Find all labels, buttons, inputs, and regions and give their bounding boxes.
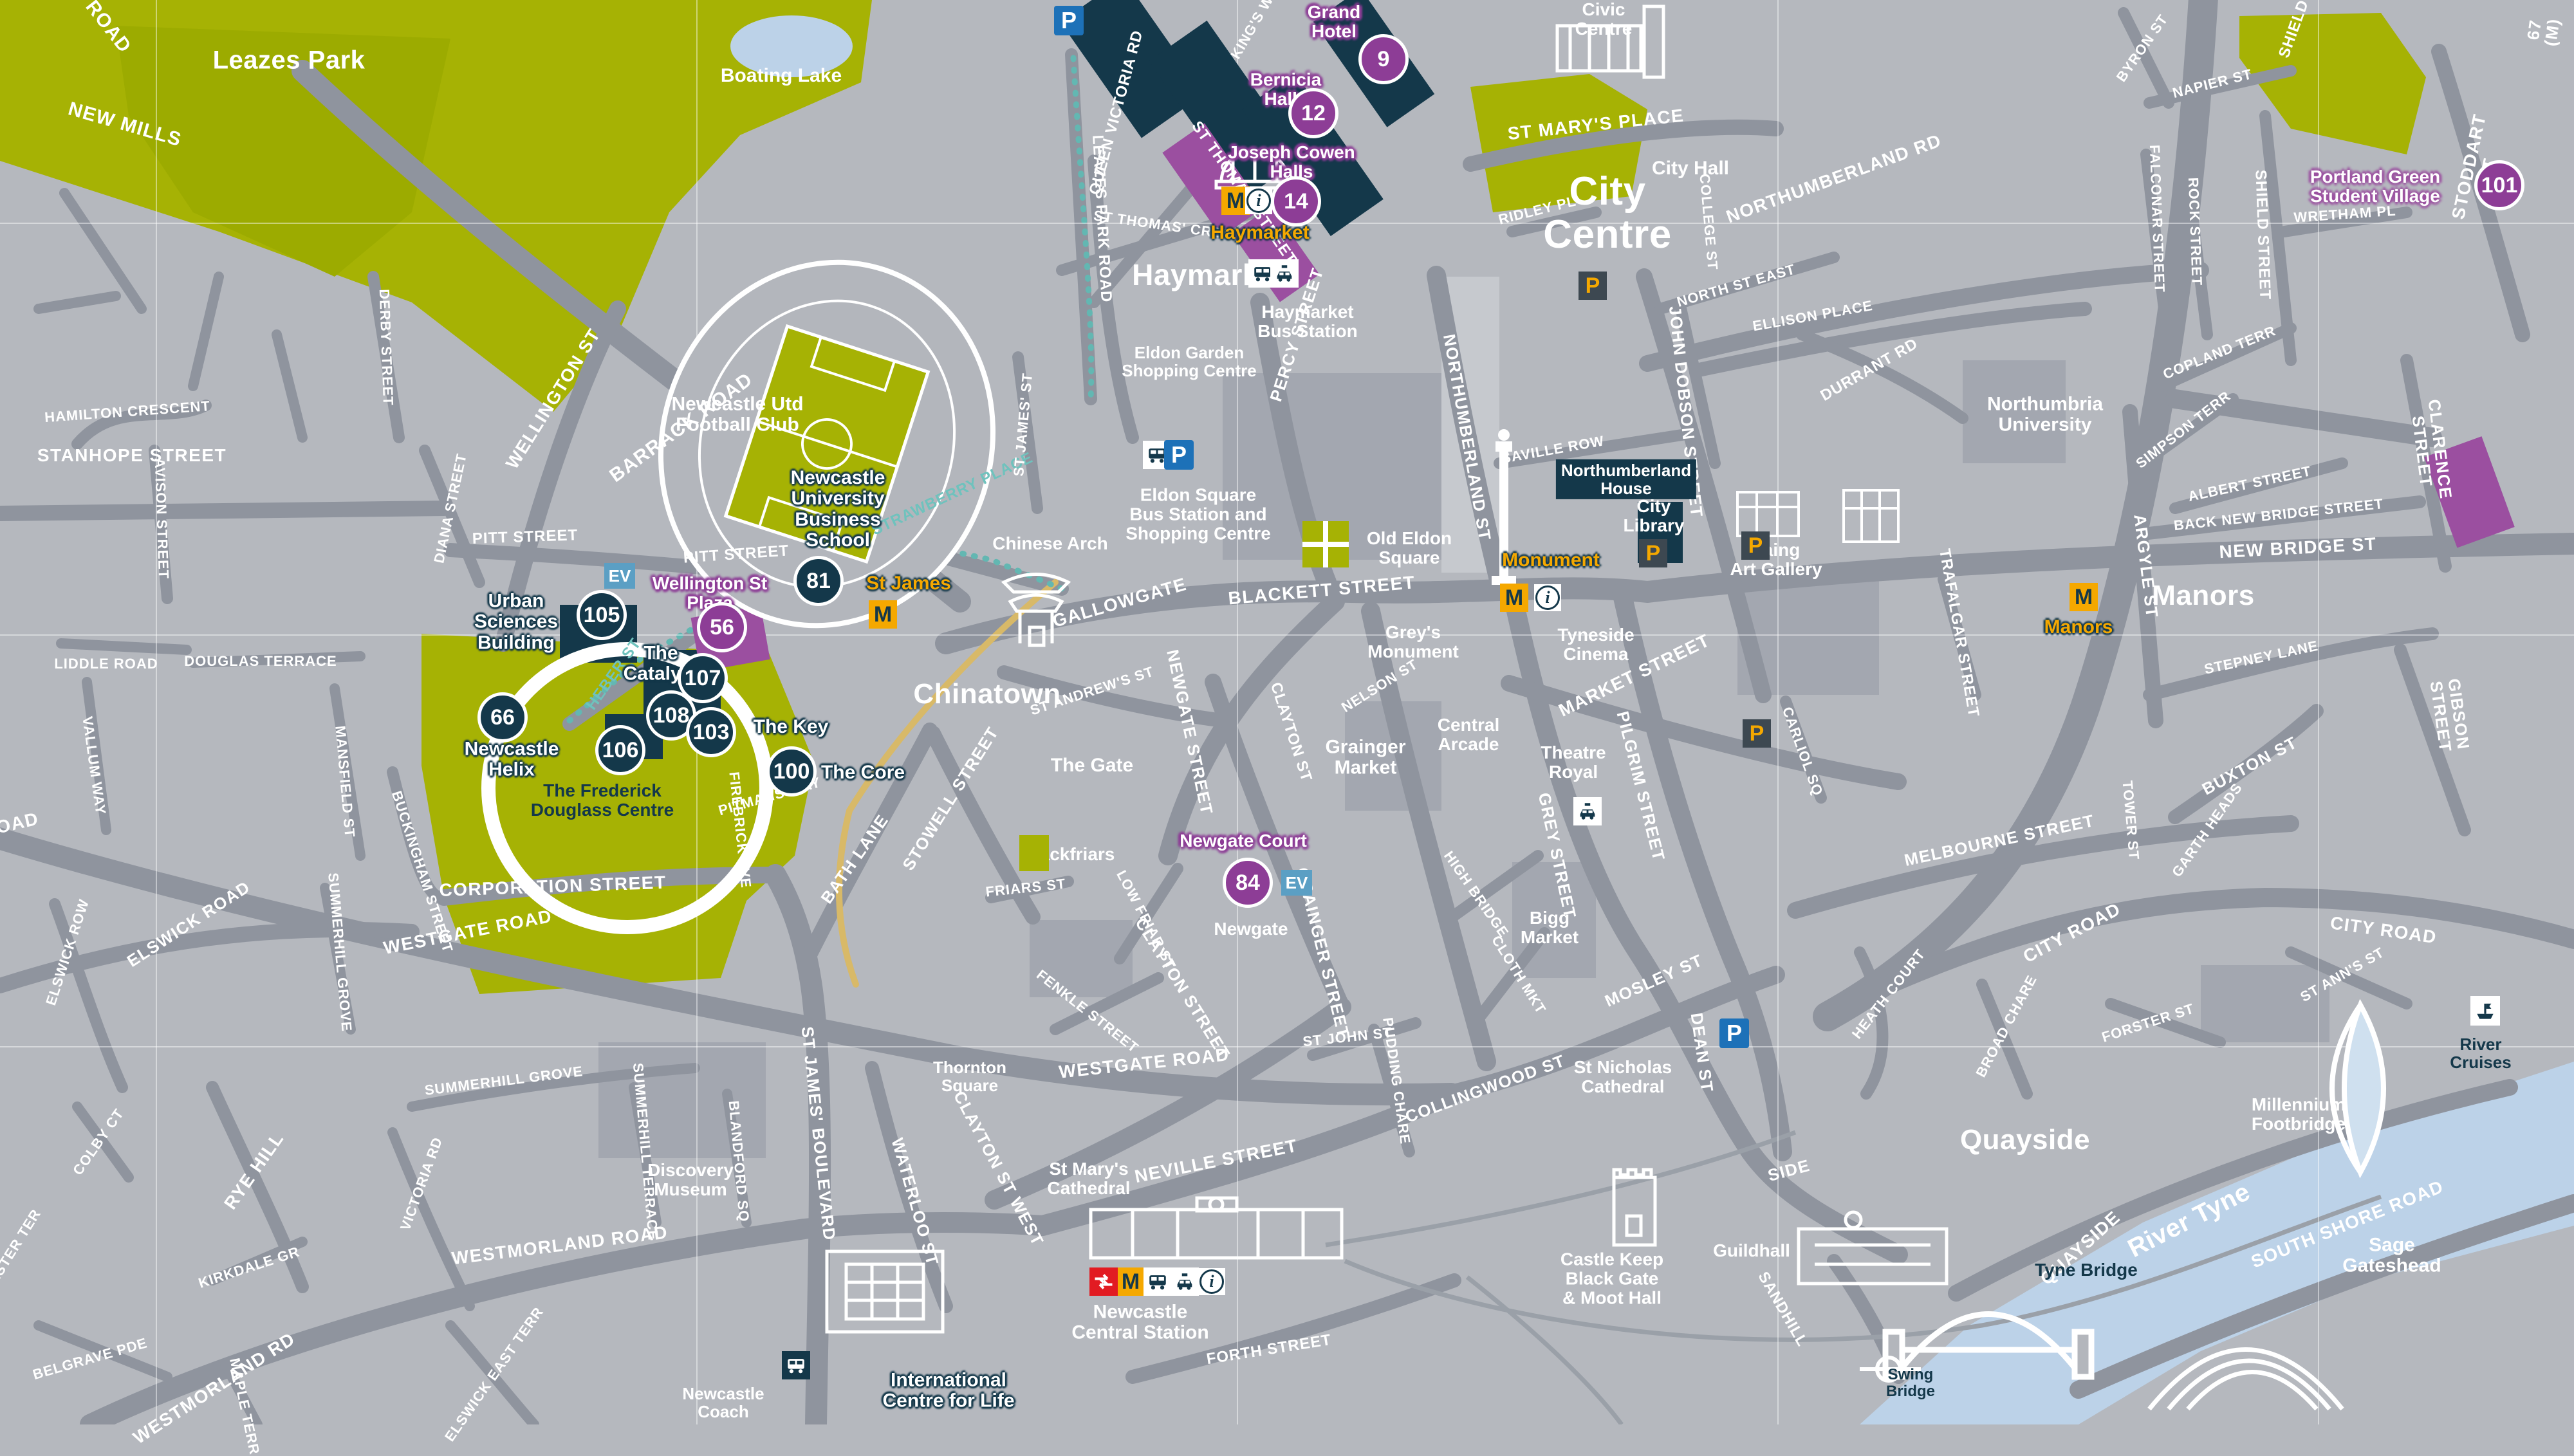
map-label-river-cruises: River Cruises <box>2450 1035 2511 1071</box>
map-label-manors: Manors <box>2152 580 2254 611</box>
map-label-thornton-square: Thornton Square <box>933 1058 1006 1094</box>
map-label-grand-hotel: Grand Hotel <box>1308 3 1360 41</box>
ev-charging-icon: EV <box>604 563 635 589</box>
metro-station-icon: M <box>1116 1267 1145 1296</box>
map-label-swing-bridge: Swing Bridge <box>1886 1367 1935 1400</box>
map-label-city-library: City Library <box>1624 497 1685 535</box>
parking-icon-orange: P <box>1741 531 1770 560</box>
poi-marker-12: 12 <box>1288 88 1338 138</box>
poi-marker-84: 84 <box>1223 858 1273 908</box>
map-label-civic-centre: Civic Centre <box>1575 0 1633 39</box>
parking-icon-orange: P <box>1743 719 1771 748</box>
map-label-the-core: The Core <box>821 762 905 783</box>
map-label-liddle-road: LIDDLE ROAD <box>54 656 158 672</box>
metro-station-icon: M <box>1500 584 1528 612</box>
map-label-bigg-market: Bigg Market <box>1521 908 1579 947</box>
city-library-building <box>1737 492 1799 536</box>
map-label-st-mary-s-cathedral: St Mary's Cathedral <box>1047 1159 1130 1198</box>
map-label-st-nicholas-cathedral: St Nicholas Cathedral <box>1574 1058 1672 1096</box>
metro-station-icon: M <box>869 600 897 629</box>
map-label-67-m: 67 (M) <box>2523 13 2563 48</box>
poi-marker-105: 105 <box>577 590 627 640</box>
map-label-international-centre-for-life: International Centre for Life <box>882 1370 1014 1412</box>
map-label-tyneside-cinema: Tyneside Cinema <box>1557 625 1634 664</box>
map-label-grey-s-monument: Grey's Monument <box>1367 623 1459 661</box>
map-label-chinatown: Chinatown <box>913 679 1060 710</box>
map-label-derby-street: DERBY STREET <box>376 289 396 406</box>
map-label-manors: Manors <box>2044 617 2113 638</box>
river-cruises-ferry-icon <box>2470 996 2500 1026</box>
national-rail-icon <box>1089 1267 1118 1296</box>
old-eldon-square-green-icon <box>1302 521 1349 567</box>
map-label-northumbria-university: Northumbria University <box>1987 394 2103 436</box>
map-label-old-eldon-square: Old Eldon Square <box>1367 529 1452 567</box>
parking-icon-blue: P <box>1164 440 1194 470</box>
map-label-eldon-garden-shopping-centre: Eldon Garden Shopping Centre <box>1122 344 1256 380</box>
map-label-the-frederick-douglass-centre: The Frederick Douglass Centre <box>531 781 674 820</box>
information-icon: i <box>1245 187 1272 214</box>
map-label-newgate-court: Newgate Court <box>1180 831 1307 851</box>
parking-icon-orange: P <box>1639 539 1667 567</box>
map-label-guildhall: Guildhall <box>1713 1241 1790 1260</box>
map-label-city-centre: City Centre <box>1543 170 1671 257</box>
map-label-urban-sciences-building: Urban Sciences Building <box>474 591 558 653</box>
poi-marker-106: 106 <box>595 725 645 775</box>
map-label-central-arcade: Central Arcade <box>1438 715 1499 754</box>
parking-icon-blue: P <box>1719 1018 1749 1048</box>
map-label-millennium-footbridge: Millennium Footbridge <box>2252 1095 2346 1134</box>
taxi-rank-icon <box>1573 797 1602 825</box>
poi-marker-56: 56 <box>697 602 747 652</box>
ev-charging-icon: EV <box>1281 870 1312 896</box>
map-label-castle-keep-black-gate-moot-hall: Castle Keep Black Gate & Moot Hall <box>1560 1250 1663 1309</box>
map-label-tyne-bridge: Tyne Bridge <box>2035 1260 2138 1280</box>
taxi-rank-icon <box>1270 259 1299 288</box>
parking-icon-blue: P <box>1054 6 1084 35</box>
map-label-northumberland-house: Northumberland House <box>1556 459 1696 499</box>
poi-marker-14: 14 <box>1271 176 1321 226</box>
map-label-haymarket-bus-station: Haymarket Bus Station <box>1257 302 1358 341</box>
map-label-newcastle-utd-football-club: Newcastle Utd Football Club <box>671 394 803 436</box>
map-label-stanhope-street: STANHOPE STREET <box>37 446 227 465</box>
blackfriars-green-icon <box>1019 835 1049 871</box>
parking-icon-orange: P <box>1579 272 1607 300</box>
taxi-rank-icon <box>1171 1267 1199 1296</box>
map-label-chinese-arch: Chinese Arch <box>992 534 1107 553</box>
laing-art-gallery-building <box>1844 490 1898 542</box>
map-label-st-james: St James <box>866 573 951 594</box>
information-icon: i <box>1198 1268 1225 1295</box>
map-label-sage-gateshead: Sage Gateshead <box>2342 1235 2441 1277</box>
map-label-rock-street: ROCK STREET <box>2185 177 2205 286</box>
map-label-quayside: Quayside <box>1960 1125 2090 1156</box>
information-icon: i <box>1534 584 1561 611</box>
map-label-newcastle-coach: Newcastle Coach <box>682 1385 764 1421</box>
poi-marker-9: 9 <box>1358 34 1409 84</box>
map-label-grainger-market: Grainger Market <box>1325 737 1405 779</box>
map-label-discovery-museum: Discovery Museum <box>647 1161 734 1199</box>
bus-station-icon <box>1143 1267 1172 1296</box>
map-label-newcastle-helix: Newcastle Helix <box>465 739 559 781</box>
map-label-theatre-royal: Theatre Royal <box>1541 743 1606 782</box>
poi-marker-81: 81 <box>793 556 844 606</box>
map-label-douglas-terrace: DOUGLAS TERRACE <box>184 654 337 669</box>
poi-marker-66: 66 <box>477 692 528 742</box>
map-label-portland-green-student-village: Portland Green Student Village <box>2310 167 2440 206</box>
poi-marker-103: 103 <box>686 707 736 757</box>
metro-station-icon: M <box>2069 583 2098 611</box>
city-map: Leazes ParkBoating LakeROADNEW MILLSHAMI… <box>0 0 2574 1424</box>
map-label-joseph-cowen-halls: Joseph Cowen Halls <box>1228 143 1355 181</box>
map-label-the-key: The Key <box>754 717 829 737</box>
poi-marker-101: 101 <box>2474 160 2524 210</box>
map-label-newgate: Newgate <box>1214 919 1288 939</box>
map-label-boating-lake: Boating Lake <box>721 66 842 86</box>
map-label-newcastle-central-station: Newcastle Central Station <box>1071 1302 1208 1344</box>
coach-station-icon <box>782 1351 810 1379</box>
map-label-city-hall: City Hall <box>1652 158 1729 179</box>
poi-marker-100: 100 <box>766 746 817 797</box>
map-label-newcastle-university-business-school: Newcastle University Business School <box>791 468 885 551</box>
map-label-the-gate: The Gate <box>1051 755 1133 776</box>
map-label-monument: Monument <box>1502 550 1600 571</box>
map-label-leazes-park: Leazes Park <box>213 46 366 74</box>
map-label-eldon-square-bus-station-and-shopping-centre: Eldon Square Bus Station and Shopping Ce… <box>1125 486 1271 544</box>
